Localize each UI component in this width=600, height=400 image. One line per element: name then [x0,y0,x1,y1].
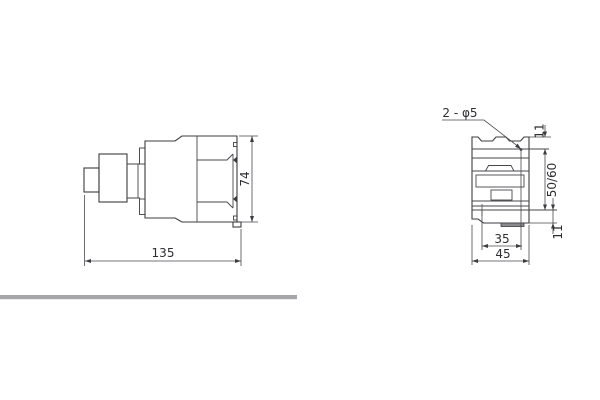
tab-upper [140,148,146,164]
dim-11-top: 11 [533,123,548,138]
technical-drawing: 74 135 [0,0,600,400]
dim-74-arrow-top [250,136,254,142]
dim-50-60-arrow-bottom [543,205,547,211]
tab-lower [140,199,146,215]
technical-drawing-page: 74 135 [0,0,600,400]
terminal-cavity [197,154,233,208]
dim-35-label: 35 [494,232,509,246]
dim-45-label: 45 [495,247,510,261]
neck-lines [127,164,140,198]
din-notch-upper [233,157,237,164]
dim-45-arrow-left [472,259,478,263]
auxiliary-block [99,154,127,202]
front-view: 2 - φ5 11 50/60 [442,106,565,265]
dim-50-60: 50/60 [543,149,559,210]
coil-button [84,168,99,192]
dim-11-bottom: 11 [551,198,565,240]
dim-11-top-label: 11 [533,123,547,138]
marking-plate [491,190,512,200]
hole-callout-label: 2 - φ5 [442,106,477,120]
dim-50-60-label: 50/60 [545,163,559,198]
hole-callout: 2 - φ5 [442,106,521,149]
hole-callout-leader [442,120,520,148]
side-view: 74 135 [84,136,258,266]
dim-135-arrow-right [235,259,241,263]
dim-45-arrow-right [523,259,529,263]
label-plate [476,175,524,187]
dim-11-bottom-label: 11 [551,224,565,239]
dim-35: 35 [482,232,522,248]
dim-74-arrow-bottom [250,216,254,222]
dim-35-arrow-left [482,244,488,248]
dim-11-bottom-arrow-top [551,205,555,211]
din-notch-lower [233,196,237,203]
dim-135-label: 135 [152,246,175,260]
clip-tab [486,166,515,172]
mounting-foot [233,222,241,227]
dim-135: 135 [85,195,242,266]
dim-74: 74 [238,136,258,222]
dim-135-arrow-left [85,259,91,263]
side-view-body-outline [145,136,237,222]
dim-50-60-arrow-top [543,149,547,155]
front-mounting-foot [501,223,524,227]
divider-bar [0,295,297,299]
dim-74-label: 74 [238,171,252,186]
